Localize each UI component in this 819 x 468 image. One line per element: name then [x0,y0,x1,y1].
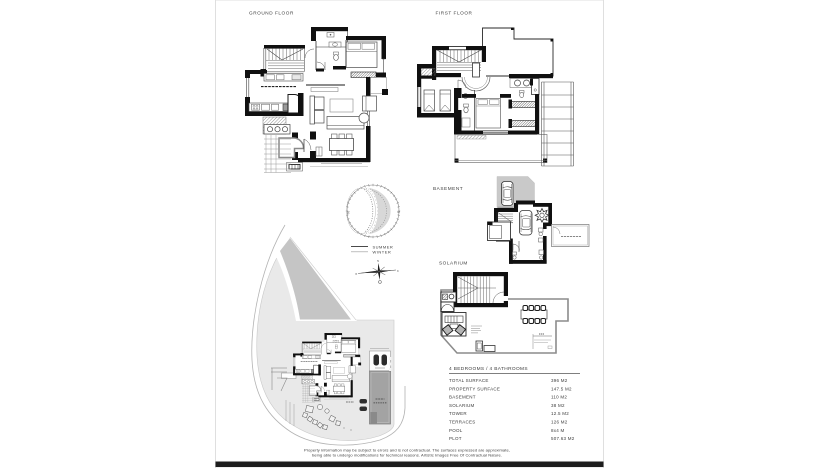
svg-text:SUMMER: SUMMER [373,244,394,249]
svg-text:O: O [355,272,357,276]
svg-text:TOTAL SURFACE: TOTAL SURFACE [449,378,489,383]
svg-text:POOL: POOL [449,428,463,433]
svg-text:BASEMENT: BASEMENT [433,186,463,191]
svg-text:507.63 M2: 507.63 M2 [551,436,575,441]
svg-text:147.5 M2: 147.5 M2 [551,386,572,391]
svg-text:BASEMENT: BASEMENT [449,395,476,400]
svg-text:SOLARIUM: SOLARIUM [439,261,468,266]
svg-text:being able to undergo modifica: being able to undergo modifications for … [312,452,502,457]
svg-text:WINTER: WINTER [373,250,392,255]
svg-text:PLOT: PLOT [449,436,462,441]
svg-text:GROUND FLOOR: GROUND FLOOR [249,11,294,16]
svg-text:SOLARIUM: SOLARIUM [449,403,475,408]
svg-text:126 M2: 126 M2 [551,420,568,425]
svg-text:396 M2: 396 M2 [551,378,568,383]
svg-text:PROPERTY SURFACE: PROPERTY SURFACE [449,386,500,391]
svg-text:TERRACES: TERRACES [449,420,476,425]
svg-text:12.5 M2: 12.5 M2 [551,411,569,416]
svg-text:S: S [397,211,401,213]
svg-text:110 M2: 110 M2 [551,395,567,400]
svg-text:TOWER: TOWER [449,411,467,416]
svg-text:38 M2: 38 M2 [551,403,565,408]
svg-text:8x4 M: 8x4 M [551,428,565,433]
svg-text:4 BEDROOMS / 4 BATHROOMS: 4 BEDROOMS / 4 BATHROOMS [449,366,528,372]
svg-text:FIRST FLOOR: FIRST FLOOR [436,11,473,16]
